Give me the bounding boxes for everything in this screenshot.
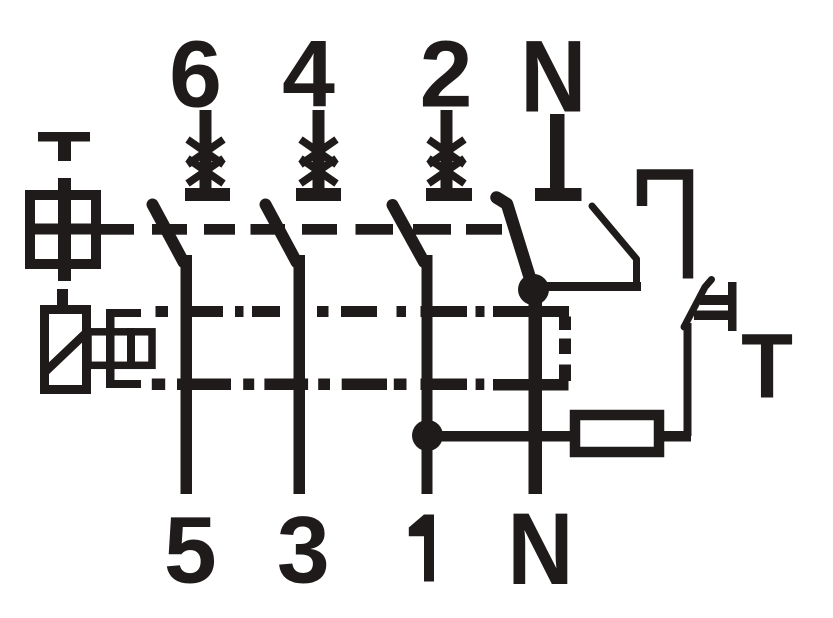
svg-text:T: T [741,314,793,417]
svg-text:4: 4 [282,22,335,128]
svg-text:2: 2 [420,22,473,128]
svg-text:3: 3 [277,498,330,604]
svg-text:N: N [507,491,573,606]
svg-text:6: 6 [169,22,222,128]
svg-text:N: N [520,19,586,134]
svg-text:5: 5 [164,498,217,604]
